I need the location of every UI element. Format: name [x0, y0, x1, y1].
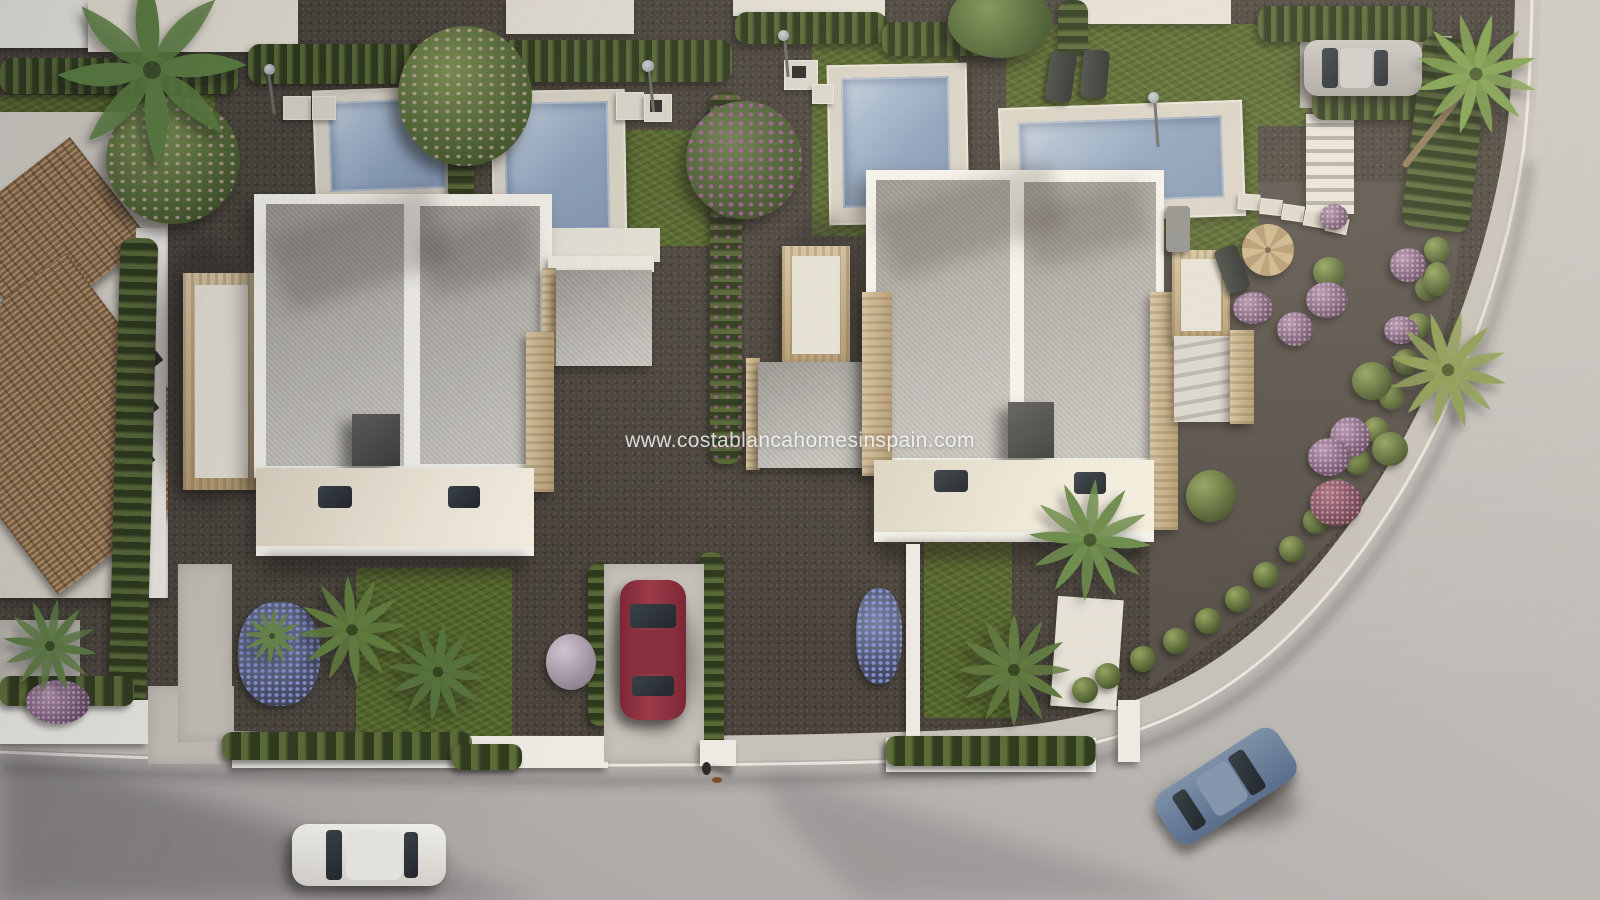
pedestrian [702, 762, 711, 775]
bush [1186, 470, 1236, 522]
bougainvillea-tree [686, 101, 802, 219]
bush [1072, 677, 1098, 703]
canopy-parapet [256, 546, 534, 556]
windshield [1322, 48, 1338, 88]
bush [1225, 586, 1251, 612]
shower-drain [792, 66, 806, 78]
windshield [326, 830, 342, 880]
flowering-shrub [1233, 292, 1273, 324]
travertine-wall [1230, 330, 1254, 424]
parasol-pole [1265, 247, 1271, 253]
bush [1195, 608, 1221, 634]
flowering-shrub [1308, 438, 1350, 476]
rear-window [1374, 50, 1388, 86]
stepping-pad [1237, 193, 1260, 210]
casita-roof [556, 270, 652, 366]
garden-wall [906, 544, 920, 736]
flowering-shrub [1384, 316, 1418, 344]
shrub-row [222, 732, 472, 760]
hedge [1258, 6, 1434, 42]
watermark: www.costablancahomesinspain.com [625, 430, 975, 451]
rear-window [632, 676, 674, 696]
skylight [1074, 472, 1106, 494]
flowering-shrub [1390, 248, 1426, 282]
flowering-tree [106, 96, 240, 224]
pergola-terrace [792, 256, 840, 354]
outdoor-sofa [1166, 206, 1190, 252]
dog [712, 777, 722, 783]
skylight [448, 486, 480, 508]
car-roof [630, 630, 676, 674]
lawn [924, 540, 1012, 718]
flowering-shrub [1310, 480, 1362, 526]
neighbour-roof [506, 0, 634, 34]
hedge [0, 58, 238, 94]
flower-bed [856, 588, 902, 684]
bush [1424, 237, 1450, 263]
sun-lounger [1080, 49, 1110, 99]
car-roof [1340, 48, 1372, 88]
left-villa [254, 194, 552, 478]
flowering-shrub [1277, 312, 1313, 346]
bush [1424, 262, 1450, 296]
car-body [1149, 722, 1302, 851]
skylight [318, 486, 352, 508]
right-villa [866, 170, 1164, 470]
stepping-pad [312, 96, 336, 120]
skylight [934, 470, 968, 492]
canopy-parapet [874, 532, 1154, 542]
pergola-frame [782, 246, 850, 364]
patio [178, 564, 232, 742]
rear-window [404, 832, 418, 878]
flower-bed [238, 602, 320, 706]
hedge [735, 12, 887, 44]
street-lamp [778, 30, 789, 41]
stepping-pad [1281, 204, 1305, 223]
street-lamp [642, 60, 654, 72]
flowering-shrub [1320, 204, 1348, 230]
lavender-ball-shrub [546, 634, 596, 690]
stepping-pad [1259, 198, 1283, 216]
bush [1253, 562, 1279, 588]
bush [1130, 646, 1156, 672]
aerial-render: www.costablancahomesinspain.com [0, 0, 1600, 900]
stepping-pad [812, 84, 834, 104]
canopy-shadow [266, 556, 524, 576]
neighbour-roof [0, 0, 92, 48]
pergola-frame [183, 273, 260, 490]
bush [1393, 349, 1419, 375]
wall-pillar [1118, 700, 1140, 762]
ground-floor-canopy [874, 460, 1154, 540]
shrub-row [452, 744, 522, 770]
shrub-row [886, 736, 1096, 766]
silver-car [1304, 40, 1422, 96]
shower-pad [616, 92, 644, 120]
roof-chimney-box [1008, 402, 1054, 458]
staircase [1306, 114, 1354, 214]
parasol [1242, 224, 1294, 276]
flowering-tree [398, 26, 532, 166]
car-roof [346, 830, 402, 880]
bush [1279, 536, 1305, 562]
terrace-slab [1181, 259, 1221, 331]
windshield [630, 604, 676, 628]
bush [1372, 432, 1408, 466]
roof-chimney-box [352, 414, 400, 466]
flowering-shrub [1306, 282, 1348, 318]
white-car [292, 824, 446, 886]
rear-window [1171, 788, 1207, 832]
bush [1095, 663, 1121, 689]
bush [1352, 362, 1392, 400]
street-lamp [1148, 92, 1159, 103]
ground-floor-canopy [256, 468, 534, 552]
bush [1163, 628, 1189, 654]
lawn [356, 568, 512, 742]
red-car [620, 580, 686, 720]
flowering-shrub [26, 680, 90, 724]
carport-roof [758, 362, 866, 468]
pergola-terrace [195, 285, 248, 478]
stepping-pad [283, 96, 311, 120]
blue-car [1146, 736, 1306, 836]
neighbour-roof [1075, 0, 1231, 24]
